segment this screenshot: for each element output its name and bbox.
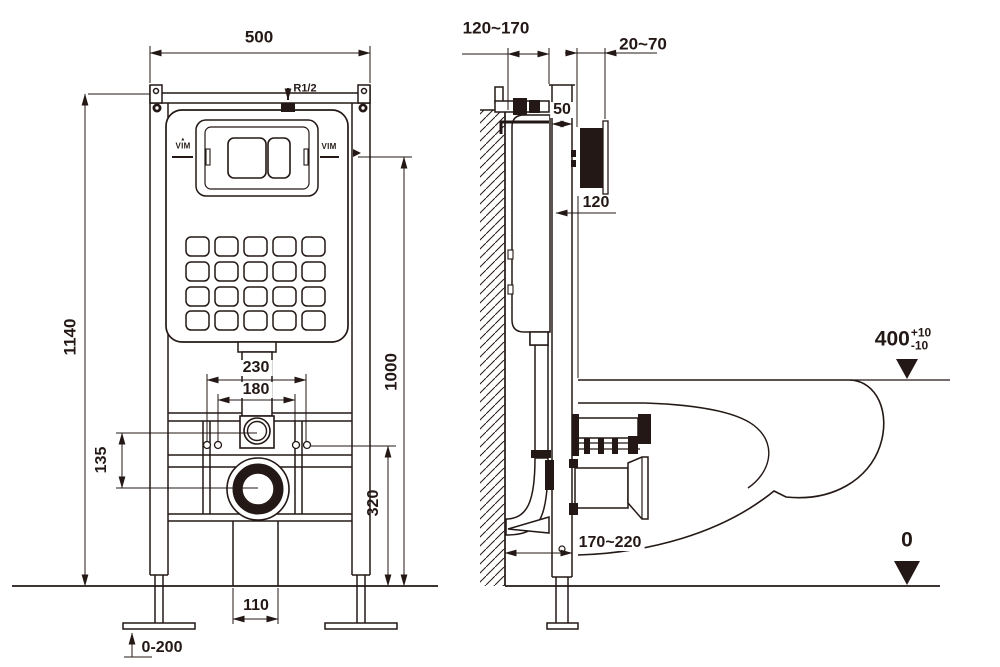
inlet-level-marker: [353, 149, 361, 157]
flush-valve-collar: [530, 332, 548, 345]
dim-outlet-offset-170-220: 170~220: [576, 535, 645, 551]
foot-plate-side: [547, 623, 578, 629]
dim-width-500: 500: [245, 29, 273, 46]
rim-tolerance-minus: -10: [911, 339, 931, 352]
foot-plate-left: [123, 623, 195, 629]
brand-mark-left: ▲VIM: [175, 138, 190, 151]
datum-triangle-400: [896, 359, 918, 379]
brand-mark-right: VIM: [321, 143, 336, 151]
dim-rim-height-400: 400 +10 -10: [875, 326, 931, 351]
dim-offset-135: 135: [94, 447, 110, 474]
dim-wall-to-frame-120-170: 120~170: [463, 20, 530, 37]
dim-plate-120: 120: [580, 195, 613, 211]
front-view-cistern: [166, 103, 361, 520]
foot-plate-right: [325, 623, 397, 629]
dim-feet-range-0-200: 0-200: [142, 640, 183, 656]
dim-finish-thickness-20-70: 20~70: [616, 36, 670, 53]
plate-recess: [196, 120, 318, 196]
datum-triangle-0: [894, 561, 920, 585]
drain-connection-pipe: [569, 457, 648, 519]
dim-height-1140: 1140: [62, 319, 79, 356]
dim-bolt-inner-180: 180: [240, 382, 273, 398]
flush-bend-collar: [238, 342, 276, 352]
floor-datum-0: 0: [901, 530, 913, 551]
dim-bolt-height-320: 320: [366, 490, 382, 517]
dim-frame-depth-50: 50: [550, 102, 574, 118]
water-inlet-fitting: [281, 103, 295, 112]
side-view: [480, 85, 950, 629]
dim-bolt-outer-230: 230: [240, 360, 273, 376]
flush-connection-pipe: [572, 414, 651, 456]
dim-outlet-gap-110: 110: [240, 598, 272, 614]
flush-plate-section: [571, 121, 608, 194]
drawing-canvas: [0, 0, 1000, 667]
drain-socket: [227, 458, 289, 520]
installation-drawing: 500 1140 R1/2 ▲VIM VIM 230 180 135 1000 …: [0, 0, 1000, 667]
label-water-inlet-r12: R1/2: [293, 84, 316, 95]
cistern-side: [512, 115, 550, 345]
wall-hatch: [480, 110, 505, 586]
dim-inlet-height-1000: 1000: [383, 353, 400, 391]
rim-tolerance-plus: +10: [911, 326, 931, 339]
soil-elbow: [506, 450, 554, 535]
